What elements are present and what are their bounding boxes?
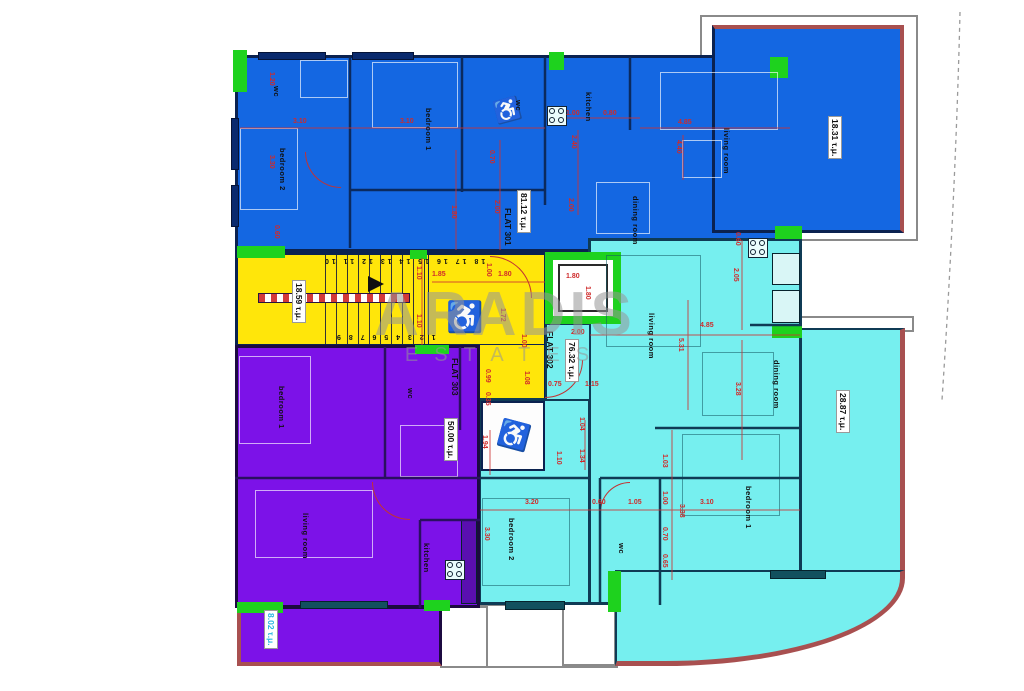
area-label: FLAT 301 [503,208,513,246]
floor-plan: 18 17 16 15 14 13 12 11 10 1 2 3 4 5 6 7… [0,0,1024,691]
area-labels-layer: 81.12 τ.μ.FLAT 30118.31 τ.μ.18.59 τ.μ.FL… [0,0,1024,691]
area-label: 28.87 τ.μ. [836,390,850,433]
area-label: 18.59 τ.μ. [292,280,306,323]
area-label: FLAT 303 [450,358,460,396]
area-label: 18.31 τ.μ. [828,116,842,159]
area-label: 76.32 τ.μ. [565,339,579,382]
area-label: FLAT 302 [545,331,555,369]
area-label: 8.02 τ.μ. [264,610,278,649]
area-label: 81.12 τ.μ. [517,190,531,233]
area-label: 50.00 τ.μ. [444,418,458,461]
